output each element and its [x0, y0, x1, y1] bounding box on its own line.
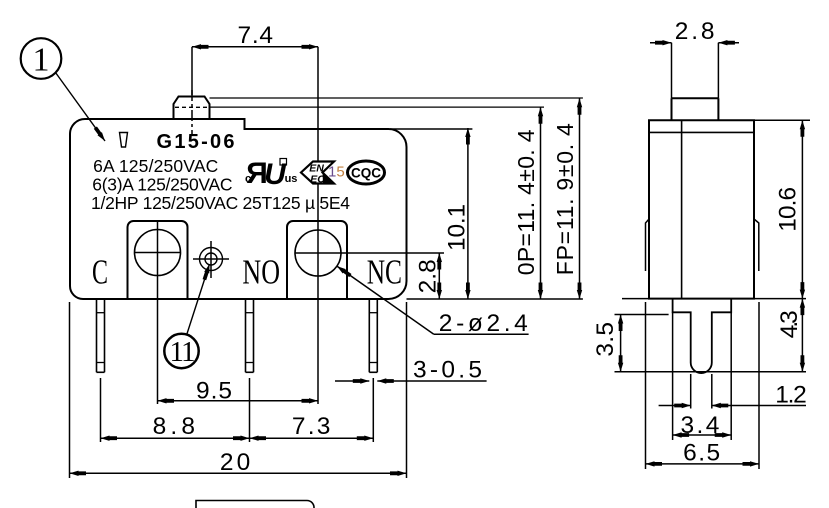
svg-text:10.6: 10.6 — [775, 187, 802, 232]
svg-text:3-0.5: 3-0.5 — [413, 357, 482, 384]
svg-text:9.5: 9.5 — [196, 377, 232, 404]
svg-text:10.1: 10.1 — [444, 204, 471, 251]
svg-text:us: us — [285, 173, 298, 185]
svg-text:1: 1 — [33, 42, 50, 79]
svg-text:c: c — [245, 173, 251, 185]
svg-text:8.8: 8.8 — [153, 413, 195, 440]
svg-text:C: C — [92, 253, 108, 292]
svg-text:2.8: 2.8 — [415, 259, 442, 293]
svg-text:4.3: 4.3 — [776, 310, 803, 338]
svg-text:15: 15 — [328, 164, 345, 181]
svg-text:11: 11 — [170, 336, 194, 368]
svg-text:G15-06: G15-06 — [157, 131, 235, 153]
svg-text:1/2HP 125/250VAC 25T125 µ 5E4: 1/2HP 125/250VAC 25T125 µ 5E4 — [91, 193, 350, 213]
svg-text:NC: NC — [367, 253, 402, 292]
svg-text:3.4: 3.4 — [681, 412, 720, 439]
svg-text:7.4: 7.4 — [238, 22, 274, 49]
svg-text:CQC: CQC — [351, 166, 381, 181]
svg-text:6(3)A 125/250VAC: 6(3)A 125/250VAC — [92, 175, 232, 195]
svg-text:6A 125/250VAC: 6A 125/250VAC — [93, 156, 218, 176]
svg-text:1.2: 1.2 — [775, 382, 807, 409]
svg-text:NO: NO — [242, 253, 280, 292]
svg-text:EC: EC — [310, 174, 325, 186]
svg-text:FP=11. 9±0. 4: FP=11. 9±0. 4 — [552, 123, 578, 275]
svg-text:0P=11. 4±0. 4: 0P=11. 4±0. 4 — [513, 129, 539, 275]
svg-text:7.3: 7.3 — [292, 413, 331, 440]
svg-text:3.5: 3.5 — [592, 322, 619, 357]
svg-text:6.5: 6.5 — [683, 440, 720, 467]
svg-text:2.8: 2.8 — [675, 18, 715, 45]
